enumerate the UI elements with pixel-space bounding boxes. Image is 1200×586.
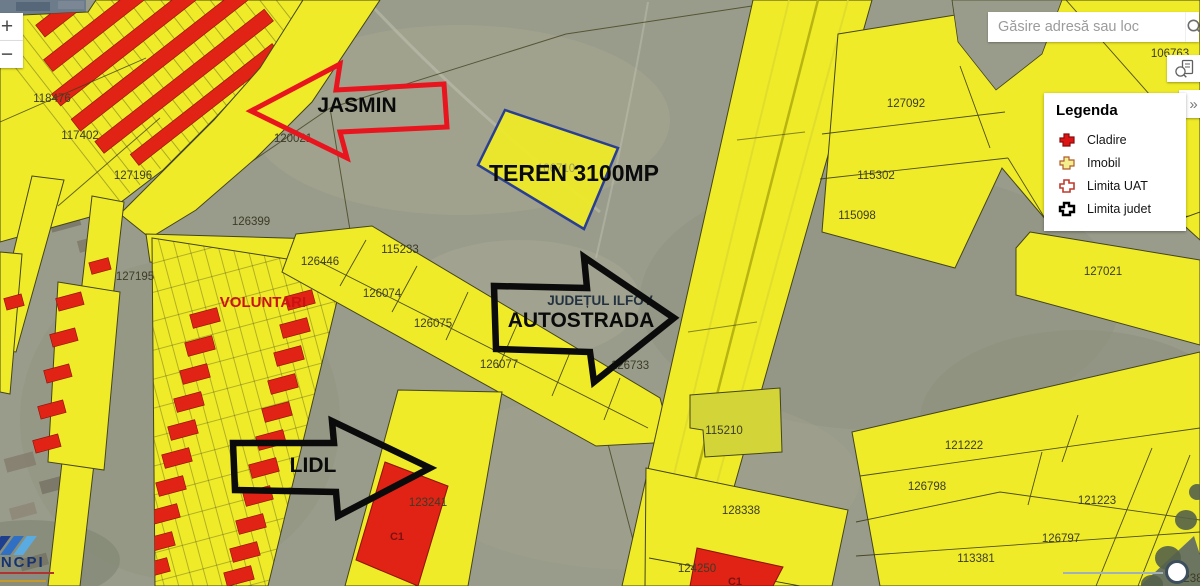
lidl-label: LIDL bbox=[290, 454, 337, 477]
legend-panel: Legenda Cladire Imobil Limita UAT Limita… bbox=[1044, 93, 1186, 231]
legend-limita-judet-icon bbox=[1056, 200, 1078, 218]
parcel-label: 128338 bbox=[722, 505, 760, 517]
parcel-label: 115210 bbox=[705, 425, 743, 437]
parcel-label: 115233 bbox=[381, 244, 419, 256]
parcel-label: 127092 bbox=[887, 98, 925, 110]
parcel-label: 121223 bbox=[1078, 495, 1116, 507]
ancpi-logo-subtext bbox=[0, 572, 98, 582]
parcel-label: 126446 bbox=[301, 256, 339, 268]
voluntari-label: VOLUNTARI bbox=[220, 294, 306, 311]
parcel-label: 126399 bbox=[232, 216, 270, 228]
parcel-label: 126074 bbox=[363, 288, 402, 300]
parcel-label: 118476 bbox=[33, 93, 71, 105]
parcel-label: 117402 bbox=[61, 130, 99, 142]
zoom-out-button[interactable]: − bbox=[0, 41, 23, 68]
search-input[interactable] bbox=[988, 12, 1185, 42]
jasmin-label: JASMIN bbox=[317, 94, 396, 117]
search-icon bbox=[1186, 18, 1200, 36]
legend-title: Legenda bbox=[1056, 102, 1180, 119]
map-canvas[interactable]: 118476 117402 127196 120021 126399 12719… bbox=[0, 0, 1200, 586]
autostrada-label: AUTOSTRADA bbox=[508, 309, 655, 332]
parcel-label: 115302 bbox=[857, 170, 895, 182]
teren-label: TEREN 3100MP bbox=[489, 160, 659, 186]
parcel-label: 123241 bbox=[409, 497, 447, 509]
parcel-label: 126797 bbox=[1042, 533, 1080, 545]
legend-imobil-icon bbox=[1056, 154, 1078, 172]
parcel-label: 126077 bbox=[480, 359, 518, 371]
legend-limita-uat-icon bbox=[1056, 177, 1078, 195]
ancpi-logo-stripes bbox=[0, 533, 98, 555]
ancpi-logo: ANCPI bbox=[0, 533, 98, 584]
parcel-label: 126798 bbox=[908, 481, 946, 493]
zoom-in-button[interactable]: + bbox=[0, 13, 23, 41]
basemap-gallery-button[interactable] bbox=[1167, 55, 1200, 82]
search-button[interactable] bbox=[1185, 12, 1200, 42]
parcel-label: 124250 bbox=[678, 563, 716, 575]
parcel-label: 127021 bbox=[1084, 266, 1122, 278]
search-box bbox=[988, 12, 1199, 42]
c1-label: C1 bbox=[728, 576, 742, 586]
ancpi-logo-text: ANCPI bbox=[0, 555, 98, 570]
legend-item-limita-judet: Limita judet bbox=[1056, 197, 1180, 220]
map-application: 118476 117402 127196 120021 126399 12719… bbox=[0, 0, 1200, 586]
parcel-label: 115098 bbox=[838, 210, 876, 222]
c1-label: C1 bbox=[390, 531, 404, 543]
parcel-label: 121222 bbox=[945, 440, 983, 452]
parcel-label: 113381 bbox=[957, 553, 995, 565]
zoom-controls: + − bbox=[0, 13, 23, 68]
legend-cladire-icon bbox=[1056, 131, 1078, 149]
basemap-gallery-icon bbox=[1174, 59, 1194, 78]
legend-item-cladire: Cladire bbox=[1056, 128, 1180, 151]
parcel-label: 127195 bbox=[116, 271, 154, 283]
parcel-label: 127196 bbox=[114, 170, 152, 182]
parcel-label: 126075 bbox=[414, 318, 452, 330]
legend-item-limita-uat: Limita UAT bbox=[1056, 174, 1180, 197]
legend-item-imobil: Imobil bbox=[1056, 151, 1180, 174]
